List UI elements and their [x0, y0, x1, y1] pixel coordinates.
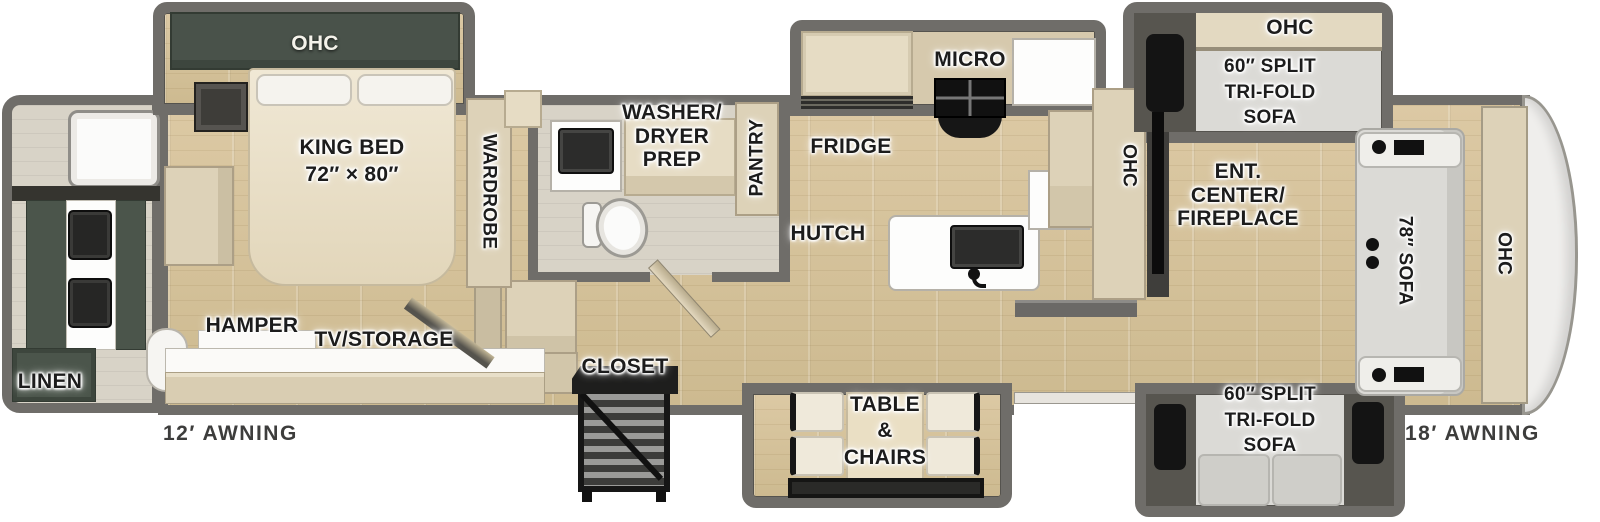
shower — [68, 110, 160, 188]
table-chairs-label: TABLE & CHAIRS — [820, 392, 950, 471]
bath-divider-wall — [12, 186, 160, 201]
entry-steps-foot — [656, 490, 666, 502]
bath-cabinet-left — [26, 200, 68, 350]
closet-label: CLOSET — [570, 355, 680, 379]
hamper-label: HAMPER — [190, 314, 314, 338]
pocket-door — [504, 90, 542, 128]
fridge-label: FRIDGE — [795, 135, 907, 159]
fridge — [801, 31, 913, 97]
table-slide-console — [788, 478, 984, 498]
entry-steps-foot — [582, 490, 592, 502]
king-bed-label: KING BED 72″ × 80″ — [252, 134, 452, 189]
sofa-cushion — [1272, 454, 1342, 506]
sofa-slide-bottom-window-left — [1154, 404, 1186, 470]
bed-pillow — [357, 74, 453, 106]
vanity-sink — [68, 278, 112, 328]
entry-opening — [1014, 404, 1138, 416]
front-cap — [1522, 95, 1578, 415]
sofa-slide-bottom-label: 60″ SPLIT TRI-FOLD SOFA — [1192, 382, 1348, 459]
sofa-78-console-bottom — [1372, 368, 1386, 382]
front-ohc-label: OHC — [1493, 214, 1514, 294]
fridge-vents — [801, 96, 913, 109]
island-sink — [950, 225, 1024, 269]
awning-right-label: 18′ AWNING — [1405, 422, 1585, 446]
sofa-cushion — [1198, 454, 1270, 506]
hutch-label: HUTCH — [770, 222, 886, 246]
bedroom-dresser — [164, 166, 234, 266]
bedroom-ohc-label: OHC — [255, 32, 375, 56]
pantry-label: PANTRY — [746, 98, 767, 218]
entry-threshold — [1014, 392, 1138, 404]
midbath-wall-right — [779, 100, 790, 282]
micro-label: MICRO — [910, 48, 1030, 72]
sofa-78-console-top — [1372, 140, 1386, 154]
rv-floorplan: LINEN OHC OHC KING BED 72″ × 80″ WARDROB… — [0, 0, 1600, 522]
sofa-78-cupholder — [1366, 256, 1379, 269]
vanity-sink — [68, 210, 112, 260]
sofa-78-console-bottom-tray — [1394, 367, 1424, 382]
closet-side-panel — [474, 280, 502, 354]
awning-left-label: 12′ AWNING — [163, 422, 343, 446]
sofa-slide-top-label: 60″ SPLIT TRI-FOLD SOFA — [1192, 54, 1348, 131]
closet-cabinet — [505, 280, 577, 354]
bath-cabinet-right — [114, 200, 146, 350]
sofa-slide-top-window — [1146, 34, 1184, 112]
nightstand — [194, 82, 248, 132]
wardrobe-label: WARDROBE — [478, 102, 499, 282]
sofa-78-label: 78″ SOFA — [1394, 181, 1415, 341]
kitchen-ohc-label: OHC — [1118, 126, 1139, 206]
sofa-78-cupholder — [1366, 238, 1379, 251]
washer-dryer-label: WASHER/ DRYER PREP — [592, 101, 752, 172]
sofa-slide-top-ohc-label: OHC — [1230, 16, 1350, 40]
sofa-78-console-top-tray — [1394, 140, 1424, 155]
stove — [934, 78, 1006, 118]
sofa-slide-bottom-window-right — [1352, 402, 1384, 464]
tv-storage-cabinet-face — [165, 372, 545, 404]
linen-label: LINEN — [6, 370, 94, 394]
tv-storage-label: TV/STORAGE — [298, 328, 470, 352]
bed-pillow — [256, 74, 352, 106]
ent-center-label: ENT. CENTER/ FIREPLACE — [1162, 160, 1314, 231]
half-wall — [1015, 300, 1137, 317]
